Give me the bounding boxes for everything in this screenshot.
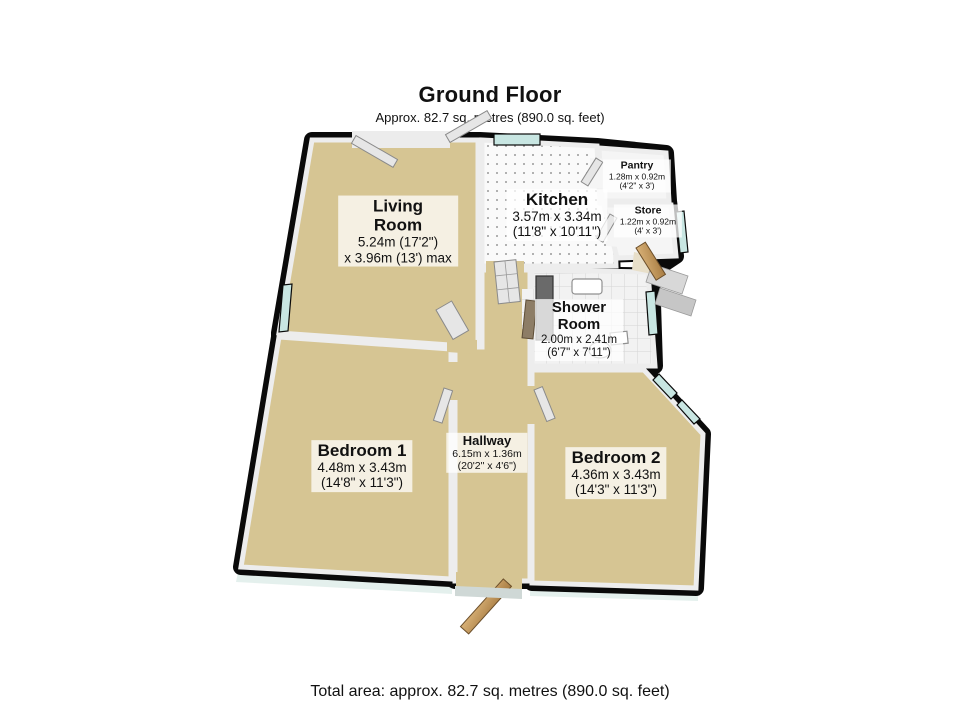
shower-room-dimensions: 2.00m x 2.41m (6'7" x 7'11") bbox=[541, 334, 617, 360]
floorplan-page: Ground Floor Approx. 82.7 sq. metres (89… bbox=[0, 0, 980, 712]
bedroom-2-label: Bedroom 2 4.36m x 3.43m (14'3" x 11'3") bbox=[565, 447, 666, 499]
hallway-name: Hallway bbox=[452, 434, 521, 449]
floorplan-svg bbox=[0, 0, 980, 712]
total-area: Total area: approx. 82.7 sq. metres (890… bbox=[0, 683, 980, 701]
bedroom-1-name: Bedroom 1 bbox=[317, 441, 406, 460]
pantry-dimensions: 1.28m x 0.92m (4'2" x 3') bbox=[609, 172, 665, 191]
living-room-label: Living Room 5.24m (17'2") x 3.96m (13') … bbox=[338, 196, 458, 267]
kitchen-door bbox=[494, 260, 520, 304]
pantry-label: Pantry 1.28m x 0.92m (4'2" x 3') bbox=[603, 159, 671, 192]
sink bbox=[572, 279, 602, 294]
bedroom-1-label: Bedroom 1 4.48m x 3.43m (14'8" x 11'3") bbox=[311, 440, 412, 492]
floorplan: Living Room 5.24m (17'2") x 3.96m (13') … bbox=[0, 0, 980, 712]
living-room-name: Living Room bbox=[344, 197, 452, 235]
hallway-label: Hallway 6.15m x 1.36m (20'2" x 4'6") bbox=[446, 433, 527, 473]
store-dimensions: 1.22m x 0.92m (4' x 3') bbox=[620, 217, 676, 236]
hallway-dimensions: 6.15m x 1.36m (20'2" x 4'6") bbox=[452, 448, 521, 472]
shower-room-label: Shower Room 2.00m x 2.41m (6'7" x 7'11") bbox=[535, 299, 623, 361]
bedroom-2-name: Bedroom 2 bbox=[571, 448, 660, 467]
kitchen-dimensions: 3.57m x 3.34m (11'8" x 10'11") bbox=[512, 209, 601, 240]
living-room-dimensions: 5.24m (17'2") x 3.96m (13') max bbox=[344, 235, 452, 266]
store-label: Store 1.22m x 0.92m (4' x 3') bbox=[614, 204, 682, 237]
bedroom-2-dimensions: 4.36m x 3.43m (14'3" x 11'3") bbox=[571, 467, 660, 498]
kitchen-window bbox=[494, 134, 540, 145]
shower-room-name: Shower Room bbox=[541, 300, 617, 334]
kitchen-label: Kitchen 3.57m x 3.34m (11'8" x 10'11") bbox=[506, 189, 607, 241]
bedroom-1-dimensions: 4.48m x 3.43m (14'8" x 11'3") bbox=[317, 460, 406, 491]
kitchen-name: Kitchen bbox=[512, 190, 601, 209]
